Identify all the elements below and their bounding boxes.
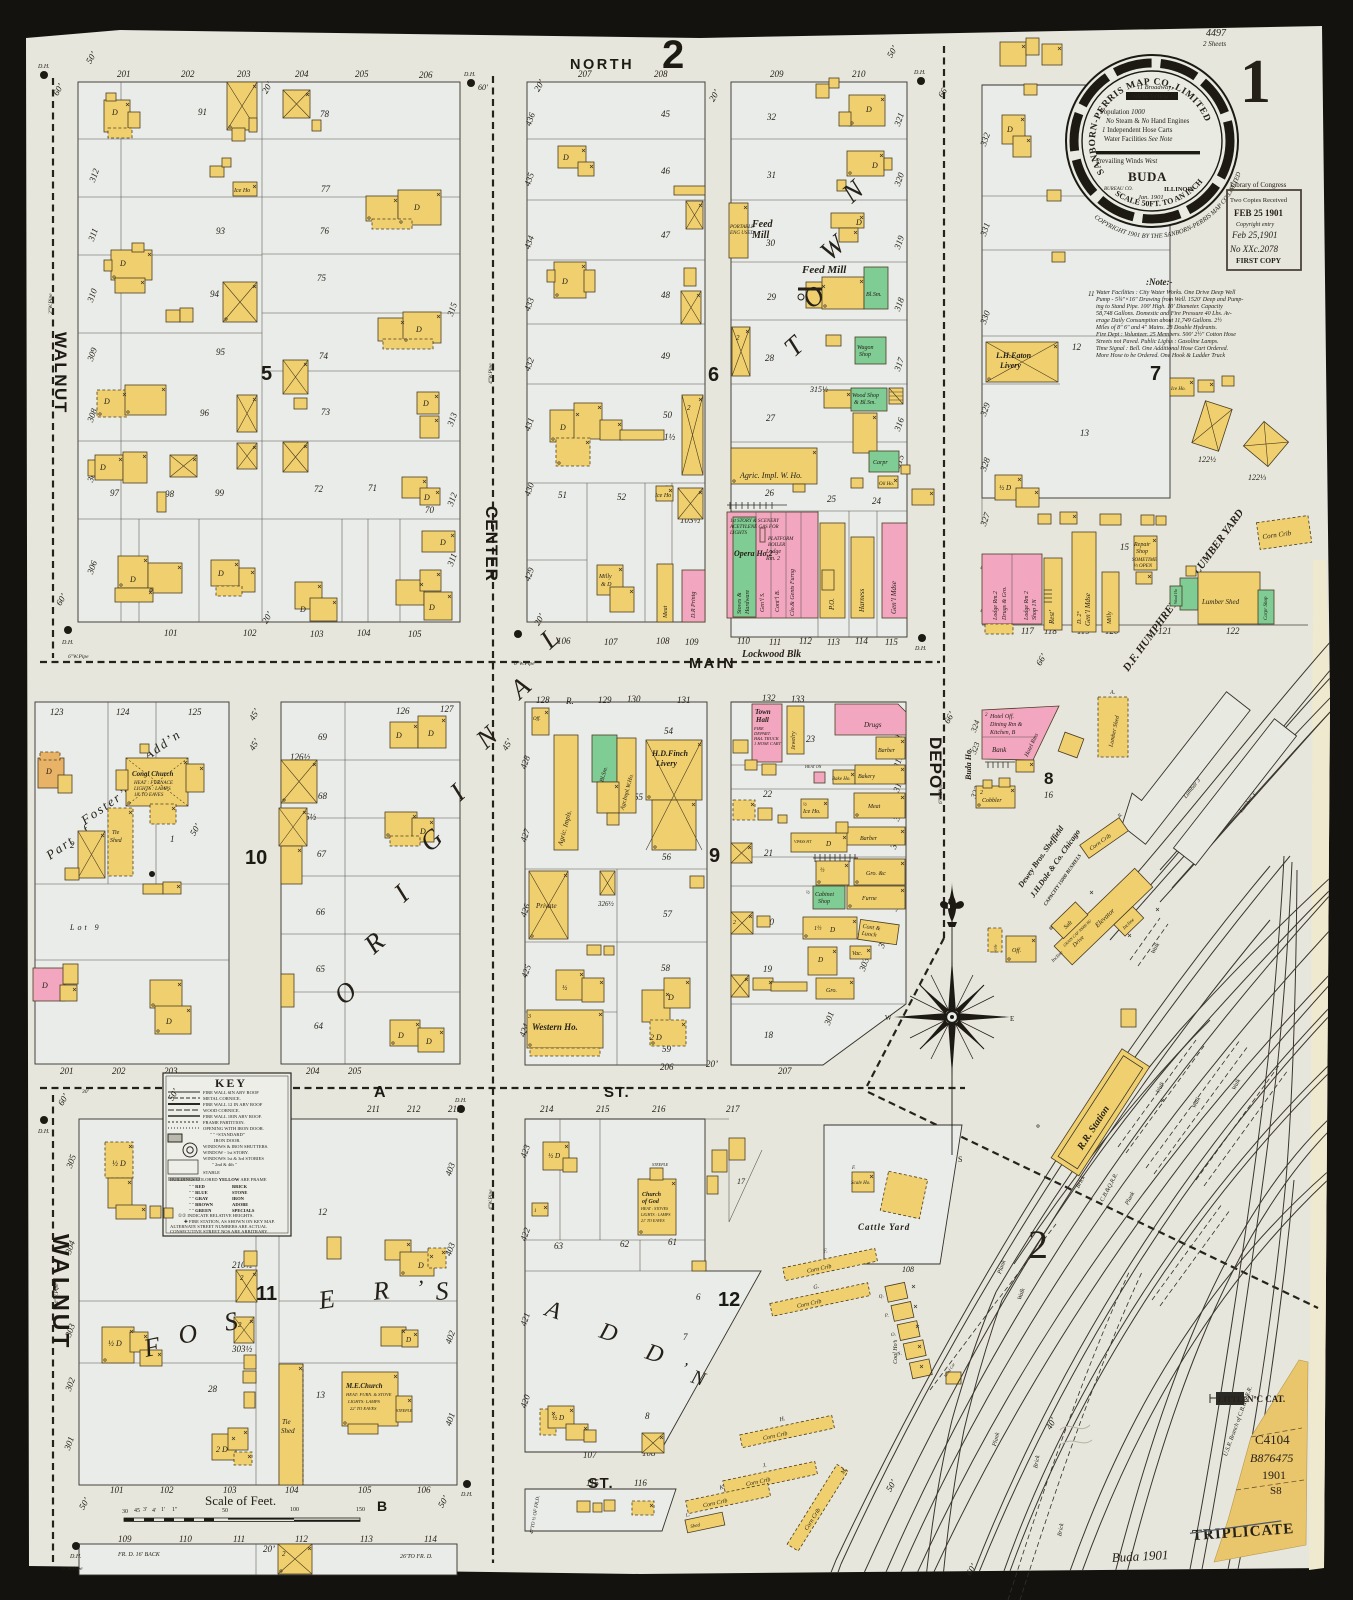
svg-text:’: ’ [416, 1275, 423, 1300]
svg-text:ACETYLENE GAS FOR: ACETYLENE GAS FOR [729, 525, 779, 530]
svg-text:½: ½ [803, 803, 807, 808]
svg-text:FEB 25 1901: FEB 25 1901 [1234, 208, 1284, 218]
svg-text:109: 109 [118, 1534, 132, 1544]
svg-text:Carpr: Carpr [873, 460, 888, 466]
svg-text:112: 112 [295, 1534, 308, 1544]
svg-text:111: 111 [769, 637, 781, 647]
svg-text:123: 123 [50, 707, 64, 717]
svg-text:″ ″ BLUE: ″ ″ BLUE [189, 1190, 208, 1195]
svg-text:ADOBE: ADOBE [232, 1202, 248, 1207]
svg-text:125: 125 [188, 707, 202, 717]
svg-text:122⅓: 122⅓ [1248, 473, 1266, 482]
svg-text:110: 110 [737, 636, 750, 646]
svg-text:A: A [374, 1084, 386, 1101]
svg-text:Livery: Livery [999, 361, 1021, 370]
svg-text:M.E.Church: M.E.Church [345, 1382, 383, 1390]
svg-text:Gro.: Gro. [826, 988, 837, 994]
svg-text:erage Daily Consumption about: erage Daily Consumption about 11,749 Gal… [1096, 317, 1222, 324]
svg-text:64: 64 [314, 1021, 324, 1031]
svg-text:204: 204 [306, 1066, 320, 1076]
svg-text:2″W.Pipe: 2″W.Pipe [48, 293, 54, 314]
svg-text:Vac.: Vac. [852, 951, 862, 957]
svg-text:4″W.Pipe: 4″W.Pipe [487, 363, 494, 384]
svg-text:WINDOW - 1st STORY.: WINDOW - 1st STORY. [203, 1150, 249, 1155]
svg-text:Jewelry: Jewelry [791, 731, 797, 750]
svg-text:57: 57 [663, 909, 673, 919]
svg-text:107: 107 [604, 637, 618, 647]
svg-text:Stoves &: Stoves & [737, 592, 743, 614]
svg-text:113: 113 [827, 637, 840, 647]
svg-text:130: 130 [627, 694, 641, 704]
svg-text:54: 54 [664, 726, 674, 736]
svg-text:D: D [865, 105, 872, 114]
svg-text:Lumber Shed: Lumber Shed [1201, 598, 1240, 606]
svg-text:S: S [434, 1276, 449, 1306]
svg-text:6″W.Pipe: 6″W.Pipe [514, 661, 535, 667]
svg-text:28: 28 [208, 1384, 218, 1394]
svg-text:49: 49 [661, 351, 671, 361]
svg-text:Population 1000: Population 1000 [1100, 109, 1145, 116]
svg-text:75: 75 [317, 273, 327, 283]
svg-text:Shop 1N: Shop 1N [1032, 599, 1038, 621]
svg-text:20’: 20’ [263, 1544, 275, 1554]
svg-text:70: 70 [425, 505, 435, 515]
svg-text:& Bl.Sm.: & Bl.Sm. [854, 400, 876, 406]
svg-text:128: 128 [536, 695, 550, 705]
svg-text:204: 204 [295, 69, 309, 79]
svg-text:6″W.Pipe: 6″W.Pipe [68, 654, 89, 660]
svg-text:BUDA: BUDA [1128, 169, 1167, 184]
svg-text:205: 205 [355, 69, 369, 79]
svg-text:7: 7 [683, 1332, 688, 1342]
svg-text:Clo.& Gents Furng: Clo.& Gents Furng [790, 569, 796, 616]
svg-text:216: 216 [652, 1104, 666, 1114]
svg-text:Off.: Off. [1012, 947, 1021, 954]
svg-text:1: 1 [170, 834, 175, 844]
svg-text:1: 1 [534, 1209, 537, 1214]
svg-text:Bakery: Bakery [858, 774, 875, 780]
svg-text:3: 3 [527, 1014, 531, 1020]
svg-text:Shed: Shed [110, 838, 123, 844]
svg-text:D.H.: D.H. [460, 1492, 473, 1498]
svg-text:77: 77 [321, 184, 331, 194]
svg-text:97: 97 [110, 488, 120, 498]
svg-text:2: 2 [282, 1550, 286, 1558]
svg-text:A.: A. [1109, 690, 1115, 696]
svg-text:214: 214 [540, 1104, 554, 1114]
svg-text:LIGHTS: LIGHTS [729, 531, 747, 536]
svg-text:16: 16 [1044, 790, 1054, 800]
svg-text:Cobbler: Cobbler [982, 798, 1002, 804]
svg-text:201: 201 [117, 69, 131, 79]
svg-text:67: 67 [317, 849, 327, 859]
svg-text:CONSECUTIVE STREET NOS ARE ARB: CONSECUTIVE STREET NOS ARE ARBITRARY. [170, 1229, 268, 1234]
svg-text:116: 116 [634, 1478, 647, 1488]
svg-text:56: 56 [662, 852, 672, 862]
svg-text:26′TO FR. D.: 26′TO FR. D. [400, 1554, 433, 1560]
svg-text:32: 32 [766, 112, 777, 122]
svg-text:Jan. 1901: Jan. 1901 [1138, 194, 1164, 201]
svg-text:104: 104 [357, 628, 371, 638]
svg-text:Water Facilities : City Water: Water Facilities : City Water Works. One… [1096, 290, 1236, 296]
svg-text:94: 94 [210, 289, 220, 299]
svg-text:FIRE WALL 12 IN ABV ROOF: FIRE WALL 12 IN ABV ROOF [203, 1102, 263, 1107]
svg-text:7: 7 [1150, 363, 1161, 385]
svg-text:STEEPLE: STEEPLE [396, 1408, 413, 1413]
svg-text:132: 132 [762, 693, 776, 703]
svg-text:12: 12 [718, 1289, 740, 1311]
svg-text:Off.: Off. [533, 717, 541, 722]
svg-text:150: 150 [356, 1507, 365, 1513]
svg-text:Gen’l Mdse: Gen’l Mdse [890, 581, 898, 614]
svg-text:½ D: ½ D [108, 1339, 122, 1348]
svg-text:113: 113 [360, 1534, 373, 1544]
svg-text:Kitchen, B: Kitchen, B [989, 730, 1016, 736]
svg-text:104: 104 [285, 1485, 299, 1495]
svg-text:Fire Dept : Volunteer. 25 Memb: Fire Dept : Volunteer. 25 Members. 500′ … [1095, 331, 1236, 338]
svg-text:Private: Private [535, 902, 557, 910]
svg-text:21′ TO EAVES: 21′ TO EAVES [641, 1218, 665, 1223]
svg-text:″ ″ BROWN: ″ ″ BROWN [189, 1202, 214, 1207]
svg-text:D: D [397, 1031, 404, 1040]
svg-text:9: 9 [709, 845, 720, 867]
svg-text:FR. D. 16′ BACK: FR. D. 16′ BACK [117, 1552, 161, 1558]
svg-text:NEW YORK: NEW YORK [1133, 94, 1169, 101]
svg-text:D: D [415, 325, 422, 334]
svg-text:Milly: Milly [1107, 611, 1113, 625]
svg-text:Lodge: Lodge [765, 549, 781, 555]
svg-text:115: 115 [885, 637, 898, 647]
svg-text:Gro. &c: Gro. &c [866, 871, 886, 877]
svg-text:205: 205 [348, 1066, 362, 1076]
svg-text:63: 63 [554, 1241, 564, 1251]
svg-text:61: 61 [668, 1237, 677, 1247]
svg-text:108: 108 [902, 1265, 914, 1274]
svg-text:E: E [1010, 1015, 1014, 1023]
svg-text:Livery: Livery [655, 759, 677, 768]
svg-text:4″W.Pipe: 4″W.Pipe [53, 1283, 60, 1304]
svg-text:G.: G. [813, 1284, 820, 1291]
svg-text:1″: 1″ [172, 1507, 178, 1513]
svg-text:6″W.Pipe: 6″W.Pipe [62, 1566, 83, 1572]
svg-text:D: D [855, 218, 862, 227]
svg-text:1 Independent Hose Carts: 1 Independent Hose Carts [1102, 127, 1173, 134]
svg-text:HEAT: FURN. & STOVE: HEAT: FURN. & STOVE [345, 1392, 392, 1397]
svg-text:D: D [422, 399, 429, 408]
svg-text:105: 105 [408, 629, 422, 639]
svg-text:65: 65 [316, 964, 326, 974]
svg-text:D.H.: D.H. [37, 64, 50, 70]
svg-text:202: 202 [112, 1066, 126, 1076]
svg-text:18: 18 [764, 1030, 774, 1040]
svg-text:PLATFORM: PLATFORM [767, 537, 794, 542]
svg-text:207: 207 [778, 1066, 792, 1076]
svg-text:98: 98 [165, 489, 175, 499]
svg-text:½ D: ½ D [548, 1152, 560, 1160]
svg-text:Shop: Shop [1136, 549, 1148, 555]
svg-text:D: D [129, 575, 136, 584]
svg-text:Drugs & Gro.: Drugs & Gro. [1002, 586, 1008, 621]
svg-text:2 Sheets: 2 Sheets [1203, 40, 1226, 48]
svg-text:Shop: Shop [859, 352, 871, 358]
svg-text:STONE: STONE [232, 1190, 248, 1195]
svg-text:209: 209 [770, 69, 784, 79]
svg-text:29: 29 [767, 292, 777, 302]
svg-text:FIRE WALL 18IN ABV ROOF.: FIRE WALL 18IN ABV ROOF. [203, 1114, 262, 1119]
svg-text:22′ TO EAVES: 22′ TO EAVES [350, 1406, 377, 1411]
svg-text:Dining Rm &: Dining Rm & [989, 722, 1023, 728]
svg-text:D: D [413, 203, 420, 212]
svg-text:Ice Ho.: Ice Ho. [802, 809, 821, 815]
svg-text:D. 2°: D. 2° [1076, 611, 1083, 625]
svg-text:½: ½ [820, 867, 825, 874]
svg-text:″ 2nd & 4th ″: ″ 2nd & 4th ″ [212, 1162, 237, 1167]
svg-text:D: D [439, 538, 446, 547]
svg-text:OPENING WITH IRON DOOR.: OPENING WITH IRON DOOR. [203, 1126, 264, 1131]
svg-text:Rest’: Rest’ [1048, 609, 1056, 625]
svg-text:D: D [562, 153, 569, 162]
svg-text:D: D [99, 463, 106, 472]
svg-text:C4104: C4104 [1255, 1432, 1290, 1447]
svg-text:D: D [425, 1037, 432, 1046]
svg-text:D.H.: D.H. [37, 1129, 50, 1135]
svg-text:1½: 1½ [814, 925, 822, 932]
svg-text:93: 93 [216, 226, 226, 236]
svg-text:215: 215 [596, 1104, 610, 1114]
svg-text:Streets not Paved. Public Ligh: Streets not Paved. Public Lights : Gasol… [1096, 339, 1219, 345]
svg-text:101: 101 [110, 1485, 124, 1495]
svg-text:O.: O. [891, 1332, 897, 1338]
svg-text:315½: 315½ [809, 385, 828, 394]
svg-text:76: 76 [320, 226, 330, 236]
svg-text:″ ″ RED: ″ ″ RED [189, 1184, 206, 1189]
svg-text:Town: Town [755, 708, 771, 716]
svg-text:127: 127 [440, 704, 454, 714]
svg-text:D.H.: D.H. [454, 1098, 467, 1104]
svg-text:D: D [395, 731, 402, 740]
svg-text:106: 106 [417, 1485, 431, 1495]
svg-text:31: 31 [766, 170, 776, 180]
svg-text:D: D [817, 956, 823, 964]
svg-text:L.: L. [685, 1513, 691, 1519]
svg-text:114: 114 [855, 636, 868, 646]
svg-text:STEEPLE: STEEPLE [652, 1162, 669, 1167]
svg-text:102: 102 [160, 1485, 174, 1495]
svg-text:78: 78 [320, 109, 330, 119]
svg-text:202: 202 [181, 69, 195, 79]
svg-text:18′ TO EAVES: 18′ TO EAVES [134, 793, 164, 798]
svg-text:D: D [1006, 125, 1013, 134]
svg-text:Copyright entry: Copyright entry [1236, 222, 1274, 228]
svg-text:Mill: Mill [751, 230, 769, 241]
svg-text:122: 122 [1226, 626, 1240, 636]
svg-text:Barber: Barber [878, 748, 896, 754]
svg-text:BRICK: BRICK [232, 1184, 247, 1189]
svg-text:1 HOSE CART: 1 HOSE CART [754, 741, 781, 746]
svg-text:Agric. Impl. W. Ho.: Agric. Impl. W. Ho. [739, 471, 802, 480]
svg-text:of God: of God [642, 1199, 660, 1205]
svg-text:D: D [423, 493, 430, 502]
svg-text:D.H.: D.H. [61, 640, 74, 646]
svg-text:22: 22 [763, 789, 773, 799]
svg-text:D: D [299, 605, 306, 614]
svg-text:108: 108 [656, 636, 670, 646]
svg-text:95: 95 [216, 347, 226, 357]
svg-text:Meat: Meat [867, 804, 881, 810]
svg-text:Time Signal : Bell. One Additi: Time Signal : Bell. One Additional Hose … [1096, 346, 1228, 352]
svg-text:6: 6 [696, 1292, 701, 1302]
svg-text:B876475: B876475 [1250, 1451, 1293, 1465]
svg-text:110: 110 [179, 1534, 192, 1544]
svg-text:Q.: Q. [879, 1294, 885, 1300]
svg-text:133: 133 [791, 694, 805, 704]
svg-text:Lodge Rm 2: Lodge Rm 2 [1024, 591, 1030, 621]
svg-text:CENTER: CENTER [482, 506, 501, 582]
svg-text:Barber: Barber [860, 836, 878, 842]
svg-text:24: 24 [872, 496, 882, 506]
svg-text:326½: 326½ [597, 900, 615, 908]
svg-text:Oil Ho.: Oil Ho. [879, 482, 894, 487]
svg-text:105: 105 [358, 1485, 372, 1495]
svg-text:WOOD CORNICE.: WOOD CORNICE. [203, 1108, 240, 1113]
svg-text:IRON: IRON [232, 1196, 245, 1201]
svg-text:Gen’l S.: Gen’l S. [760, 592, 766, 612]
svg-text:115: 115 [586, 1478, 599, 1488]
svg-text:50: 50 [222, 1508, 228, 1514]
svg-text:46: 46 [661, 166, 671, 176]
svg-text:Bank: Bank [992, 746, 1007, 754]
svg-text:Furne: Furne [861, 896, 877, 902]
svg-text:52: 52 [617, 492, 627, 502]
svg-text:1: 1 [1240, 48, 1271, 116]
svg-text:Repair: Repair [1133, 542, 1151, 548]
svg-text:Rm. 2: Rm. 2 [765, 556, 780, 562]
svg-text:SOMETIME: SOMETIME [1132, 558, 1157, 563]
svg-text:D: D [417, 1261, 424, 1270]
svg-text:FIRE WALL 6IN ABV ROOF: FIRE WALL 6IN ABV ROOF [203, 1090, 259, 1095]
svg-text:26: 26 [765, 488, 775, 498]
svg-text:207: 207 [578, 69, 592, 79]
svg-text:4′: 4′ [152, 1508, 157, 1514]
svg-text:LIGHTS : LAMPS: LIGHTS : LAMPS [133, 787, 171, 792]
svg-text:LIGHTS: LAMPS: LIGHTS: LAMPS [347, 1399, 381, 1404]
svg-text:15: 15 [1120, 542, 1130, 552]
svg-text:IRON DOOR.: IRON DOOR. [214, 1138, 241, 1143]
svg-text:D: D [41, 981, 48, 990]
svg-text:D: D [119, 259, 126, 268]
svg-text:2: 2 [1028, 1222, 1048, 1267]
svg-text:D: D [427, 729, 434, 738]
svg-text:48: 48 [661, 290, 671, 300]
svg-text:Feed Mill: Feed Mill [801, 264, 847, 276]
svg-text:12: 12 [1072, 342, 1082, 352]
svg-text:ILLINOIS: ILLINOIS [1164, 186, 1194, 193]
svg-text:27: 27 [766, 413, 776, 423]
svg-text:28: 28 [765, 353, 775, 363]
svg-text:Scale of Feet.: Scale of Feet. [205, 1493, 276, 1508]
svg-text:47: 47 [661, 230, 671, 240]
svg-text:Buda 1901: Buda 1901 [1111, 1547, 1168, 1565]
svg-text:D: D [217, 569, 224, 578]
svg-text:131: 131 [677, 695, 691, 705]
svg-text:109: 109 [685, 637, 699, 647]
svg-text:114: 114 [424, 1534, 437, 1544]
svg-text:Lot 9: Lot 9 [69, 923, 102, 932]
svg-text:6″W.Pipe: 6″W.Pipe [938, 783, 944, 804]
svg-text:½: ½ [806, 891, 810, 896]
svg-text::Note:-: :Note:- [1146, 277, 1173, 287]
svg-text:129: 129 [598, 695, 612, 705]
svg-text:Gen’l Mdse: Gen’l Mdse [1084, 593, 1092, 626]
svg-text:½ D: ½ D [999, 484, 1011, 492]
svg-text:71: 71 [368, 483, 377, 493]
svg-text:21: 21 [764, 848, 773, 858]
svg-text:No Steam & No Hand Engines: No Steam & No Hand Engines [1105, 118, 1190, 125]
svg-text:MAIN: MAIN [689, 656, 736, 672]
svg-text:Bake Ho.: Bake Ho. [832, 777, 851, 782]
svg-text:BUREAU CO.: BUREAU CO. [1104, 187, 1133, 192]
svg-text:ing to Stand Pipe. 100′ High.: ing to Stand Pipe. 100′ High. 10′ Diamet… [1096, 304, 1223, 310]
svg-text:Scale Ho.: Scale Ho. [851, 1181, 870, 1186]
svg-text:Miles of 8″ 6″ and 4″ Mains. 2: Miles of 8″ 6″ and 4″ Mains. 28 Double H… [1095, 324, 1217, 331]
svg-text:1′: 1′ [161, 1507, 166, 1513]
svg-text:Ice Ho.: Ice Ho. [1170, 387, 1186, 392]
svg-text:ENG USED: ENG USED [729, 231, 754, 236]
svg-text:51: 51 [558, 490, 567, 500]
svg-text:99: 99 [215, 488, 225, 498]
svg-text:HEAT : FURNACE: HEAT : FURNACE [133, 781, 173, 786]
svg-text:2: 2 [240, 1274, 244, 1282]
svg-text:58: 58 [661, 963, 671, 973]
svg-text:Feed: Feed [751, 219, 774, 230]
svg-text:Western Ho.: Western Ho. [532, 1022, 578, 1032]
svg-text:WALNUT: WALNUT [51, 332, 70, 414]
svg-text:2: 2 [736, 334, 740, 342]
svg-text:WINDOWS 1st & 3rd STORIES: WINDOWS 1st & 3rd STORIES [203, 1156, 264, 1161]
svg-text:122½: 122½ [1198, 455, 1216, 464]
svg-text:72: 72 [314, 484, 324, 494]
svg-text:5: 5 [261, 363, 272, 385]
svg-text:203: 203 [237, 69, 251, 79]
svg-text:Church: Church [642, 1192, 662, 1198]
svg-text:2: 2 [733, 920, 736, 926]
svg-text:Scale: Scale [992, 944, 998, 953]
svg-text:Congl Church: Congl Church [132, 770, 174, 778]
svg-text:102: 102 [243, 628, 257, 638]
svg-text:& D: & D [601, 582, 612, 588]
svg-text:V.PASS HT: V.PASS HT [794, 839, 812, 844]
svg-text:Ice Ho: Ice Ho [654, 493, 671, 499]
svg-text:D: D [559, 423, 566, 432]
svg-text:D: D [405, 1336, 411, 1344]
svg-text:1901: 1901 [1262, 1468, 1286, 1482]
svg-text:Hardware: Hardware [745, 589, 751, 615]
svg-text:D: D [825, 840, 831, 848]
svg-text:8: 8 [645, 1411, 650, 1421]
svg-text:13: 13 [316, 1390, 326, 1400]
svg-text:FRAME PARTITION.: FRAME PARTITION. [203, 1120, 245, 1125]
svg-text:4497: 4497 [1206, 28, 1227, 39]
svg-text:″ ″ “STANDARD”: ″ ″ “STANDARD” [210, 1132, 245, 1137]
svg-text:Drugs: Drugs [863, 721, 882, 729]
svg-text:11: 11 [256, 1283, 277, 1305]
svg-text:Prevailing Winds West: Prevailing Winds West [1096, 158, 1158, 165]
svg-text:Wood Shop: Wood Shop [852, 393, 879, 399]
svg-text:LITTLE: LITTLE [1218, 1395, 1248, 1404]
svg-text:KEY: KEY [215, 1076, 247, 1090]
svg-text:206: 206 [419, 70, 433, 80]
svg-text:Library of Congress: Library of Congress [1230, 181, 1287, 189]
